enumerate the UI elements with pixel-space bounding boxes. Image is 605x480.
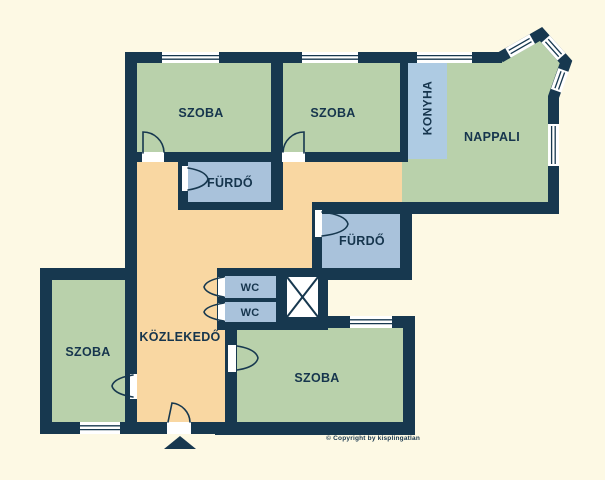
wall-furdo1-bottom <box>178 202 283 210</box>
wall-bottom-right <box>215 422 415 435</box>
window <box>80 422 120 434</box>
label-wc-upper: WC <box>241 282 260 294</box>
label-furdo-lower: FÜRDŐ <box>339 233 385 248</box>
door-leaf <box>315 210 322 237</box>
wall-furdo1-right <box>271 162 283 210</box>
wall-divider-szoba1-szoba2 <box>271 63 283 162</box>
window <box>162 52 219 63</box>
wall-divider-szoba2-konyha <box>400 63 408 162</box>
label-szoba-top-mid: SZOBA <box>310 106 355 120</box>
label-kozlekedo: KÖZLEKEDŐ <box>139 329 220 344</box>
wall-bottom-left <box>40 422 237 434</box>
floor-plan: SZOBA SZOBA KONYHA NAPPALI FÜRDŐ FÜRDŐ W… <box>0 0 605 480</box>
door-leaf <box>282 152 305 162</box>
label-konyha: KONYHA <box>421 81 435 135</box>
copyright-text: © Copyright by kisplingatlan <box>326 434 420 442</box>
door-leaf <box>218 277 225 297</box>
label-szoba-left: SZOBA <box>65 345 110 359</box>
door-leaf <box>167 422 191 434</box>
door-leaf <box>130 374 137 399</box>
wall-bszoba-right <box>403 316 415 434</box>
label-wc-lower: WC <box>241 307 260 319</box>
label-nappali: NAPPALI <box>464 130 520 144</box>
window <box>548 124 559 166</box>
label-szoba-bottom: SZOBA <box>294 371 339 385</box>
label-szoba-top-left: SZOBA <box>178 106 223 120</box>
door-leaf <box>142 152 164 162</box>
window <box>417 52 472 63</box>
window <box>302 52 358 63</box>
label-furdo-upper: FÜRDŐ <box>207 175 253 190</box>
window <box>350 316 392 328</box>
door-leaf <box>228 345 236 372</box>
wall-lszoba-left <box>40 268 52 434</box>
wall-lszoba-top <box>40 268 137 280</box>
door-leaf <box>218 303 225 321</box>
shaft <box>287 277 318 317</box>
wall-nappali-bottom <box>312 202 559 214</box>
wall-szoba-bottom <box>125 152 408 162</box>
door-leaf <box>182 166 188 191</box>
